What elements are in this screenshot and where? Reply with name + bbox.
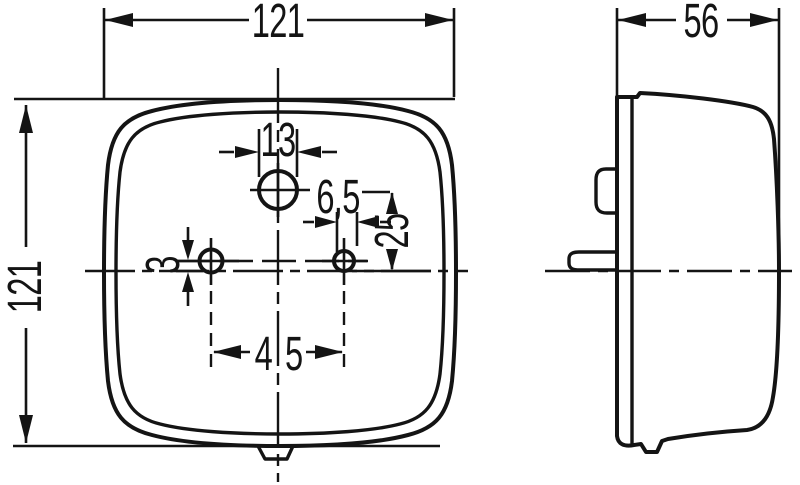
arrowhead-right xyxy=(315,345,343,359)
dim-hole-spacing: 45 xyxy=(213,327,343,381)
side-outer-contour xyxy=(617,93,779,452)
arrowhead-up xyxy=(182,272,194,292)
arrowhead-down xyxy=(19,415,33,443)
drawing-canvas: 121 121 56 13 6,5 xyxy=(0,0,800,485)
dim-label-front-width: 121 xyxy=(252,0,304,48)
arrowhead-up xyxy=(386,192,398,214)
arrowhead-left xyxy=(297,146,321,158)
dim-depth: 56 xyxy=(617,0,779,260)
side-lower-bracket xyxy=(569,252,617,270)
dim-label-vertical-offset: 25 xyxy=(365,214,419,249)
dim-label-hole-spacing: 45 xyxy=(255,327,316,381)
side-view xyxy=(545,93,792,452)
dim-vertical-offset: 25 xyxy=(352,192,431,271)
dim-label-axis-offset: 3 xyxy=(136,256,190,273)
dim-axis-offset: 3 xyxy=(136,227,239,306)
arrowhead-right xyxy=(235,146,259,158)
technical-drawing: 121 121 56 13 6,5 xyxy=(0,0,800,485)
arrowhead-right xyxy=(750,13,778,27)
arrowhead-left xyxy=(213,345,241,359)
arrowhead-left xyxy=(618,13,646,27)
dim-label-top-hole: 13 xyxy=(261,113,296,167)
arrowhead-up xyxy=(19,105,33,133)
arrowhead-left xyxy=(105,13,133,27)
side-upper-lug xyxy=(596,169,617,213)
arrowhead-down xyxy=(386,249,398,271)
arrowhead-right xyxy=(425,13,453,27)
dim-label-front-height: 121 xyxy=(0,261,52,313)
dim-label-small-hole: 6,5 xyxy=(316,170,359,224)
dim-label-depth: 56 xyxy=(684,0,719,48)
